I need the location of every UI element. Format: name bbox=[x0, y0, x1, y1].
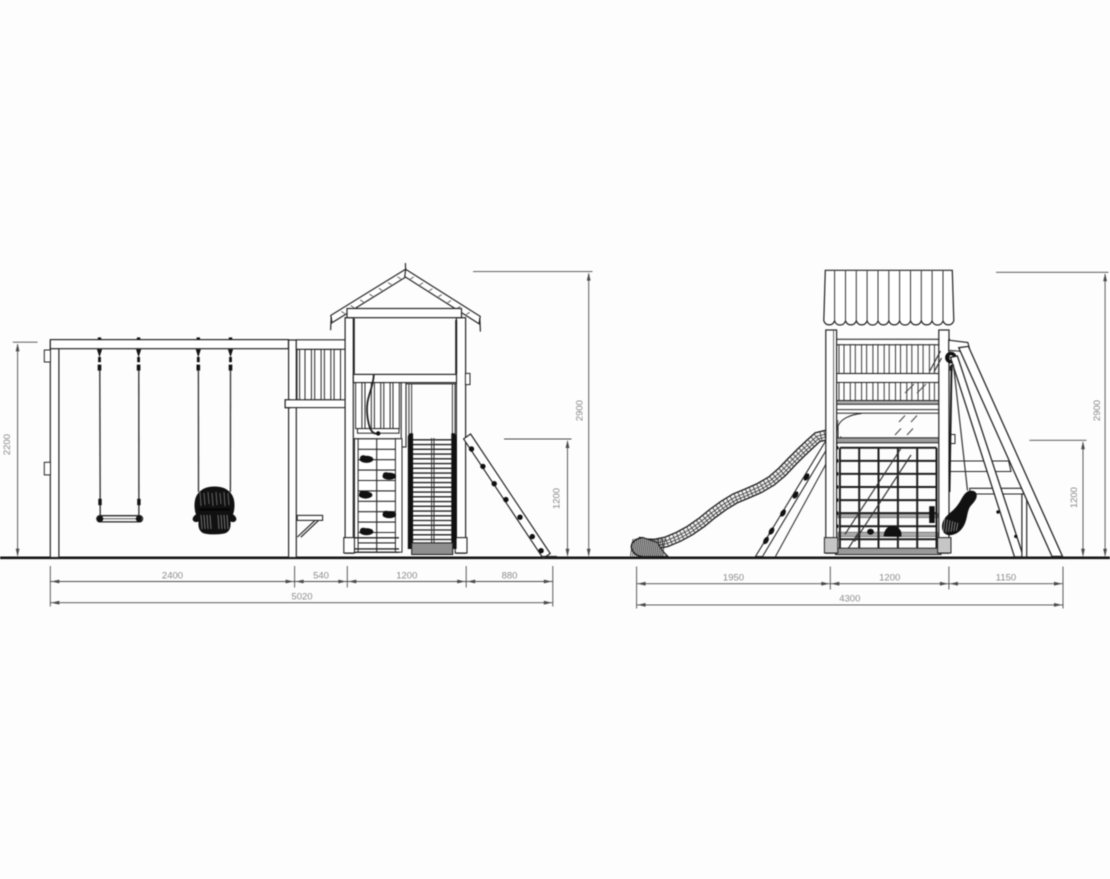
svg-text:2900: 2900 bbox=[575, 400, 586, 421]
svg-text:880: 880 bbox=[502, 570, 518, 581]
svg-text:5020: 5020 bbox=[291, 592, 312, 603]
svg-text:2200: 2200 bbox=[2, 434, 13, 455]
svg-text:1200: 1200 bbox=[396, 570, 417, 581]
svg-text:2900: 2900 bbox=[1092, 400, 1103, 421]
svg-text:540: 540 bbox=[313, 570, 329, 581]
svg-text:1950: 1950 bbox=[723, 573, 744, 584]
svg-text:1150: 1150 bbox=[996, 573, 1016, 584]
svg-text:2400: 2400 bbox=[162, 570, 183, 581]
svg-text:1200: 1200 bbox=[552, 488, 563, 509]
svg-text:1200: 1200 bbox=[879, 573, 900, 584]
svg-text:4300: 4300 bbox=[839, 594, 860, 605]
svg-text:1200: 1200 bbox=[1069, 487, 1080, 508]
